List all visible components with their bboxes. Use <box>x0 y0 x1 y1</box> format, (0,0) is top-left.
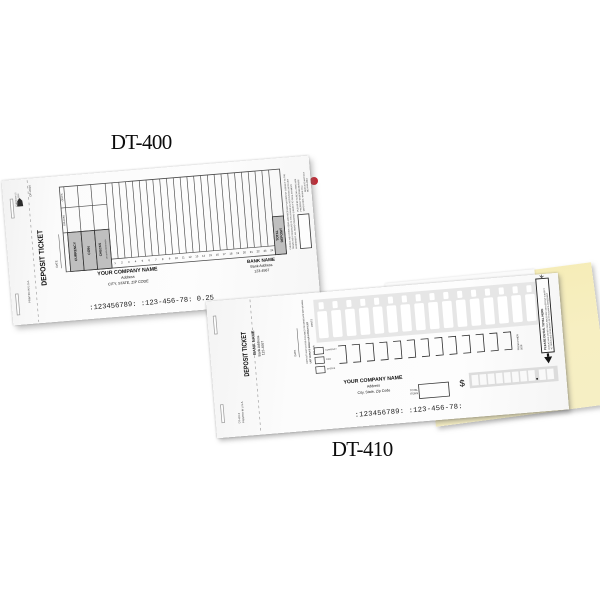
svg-text:20: 20 <box>243 250 247 254</box>
svg-text:$: $ <box>459 379 466 390</box>
svg-text:7: 7 <box>155 258 157 262</box>
svg-text::123456789: :123-456-78:: :123456789: :123-456-78: <box>354 403 463 420</box>
svg-text:19: 19 <box>236 251 240 255</box>
svg-text:18: 18 <box>230 252 234 256</box>
svg-text:CURRENCY: CURRENCY <box>325 349 337 352</box>
svg-text::123456789: :123-456-78: 0.25: :123456789: :123-456-78: 0.25 <box>89 295 214 313</box>
svg-text:17: 17 <box>223 252 227 256</box>
svg-text:3: 3 <box>128 260 130 264</box>
svg-text:9: 9 <box>169 257 171 261</box>
svg-text:SIDE: SIDE <box>520 344 523 350</box>
svg-text:DEPOSIT TICKET: DEPOSIT TICKET <box>36 229 50 286</box>
svg-text:COIN: COIN <box>326 359 332 361</box>
svg-text:13: 13 <box>196 254 200 258</box>
svg-text:6: 6 <box>149 258 151 262</box>
svg-text:123-4567: 123-4567 <box>254 268 269 273</box>
svg-text:4: 4 <box>135 259 137 263</box>
svg-text:City, State, Zip Code: City, State, Zip Code <box>357 389 390 396</box>
svg-text:DP-A014: DP-A014 <box>28 185 33 197</box>
svg-text:21: 21 <box>250 250 254 254</box>
svg-text:1: 1 <box>115 261 117 265</box>
svg-text:CHECKS: CHECKS <box>327 368 336 371</box>
svg-text:2: 2 <box>121 261 123 265</box>
svg-text:15: 15 <box>209 253 213 257</box>
svg-text:DEPOSIT TICKET: DEPOSIT TICKET <box>240 331 251 377</box>
svg-text:5: 5 <box>142 259 144 263</box>
svg-text:Address: Address <box>121 275 135 280</box>
svg-text:PRINTED IN U.S.A.: PRINTED IN U.S.A. <box>26 280 32 303</box>
svg-text:PRINTED IN U.S.A.: PRINTED IN U.S.A. <box>241 401 246 424</box>
svg-text:ITEMS: ITEMS <box>410 391 418 396</box>
svg-text:CENTS: CENTS <box>310 319 314 328</box>
svg-text:22: 22 <box>257 249 261 253</box>
svg-text:23: 23 <box>264 249 268 253</box>
svg-text:CITY, STATE, ZIP CODE: CITY, STATE, ZIP CODE <box>108 279 149 286</box>
svg-text:24: 24 <box>270 248 274 252</box>
svg-text:14: 14 <box>202 254 206 258</box>
svg-text:10: 10 <box>175 256 179 260</box>
svg-text:11: 11 <box>182 255 186 259</box>
svg-text:DATE: DATE <box>55 260 60 268</box>
svg-text:8: 8 <box>162 257 164 261</box>
svg-text:123-4567: 123-4567 <box>260 341 265 356</box>
svg-text:DATE: DATE <box>293 350 298 357</box>
svg-text:16: 16 <box>216 253 220 257</box>
svg-text:12: 12 <box>189 255 193 259</box>
